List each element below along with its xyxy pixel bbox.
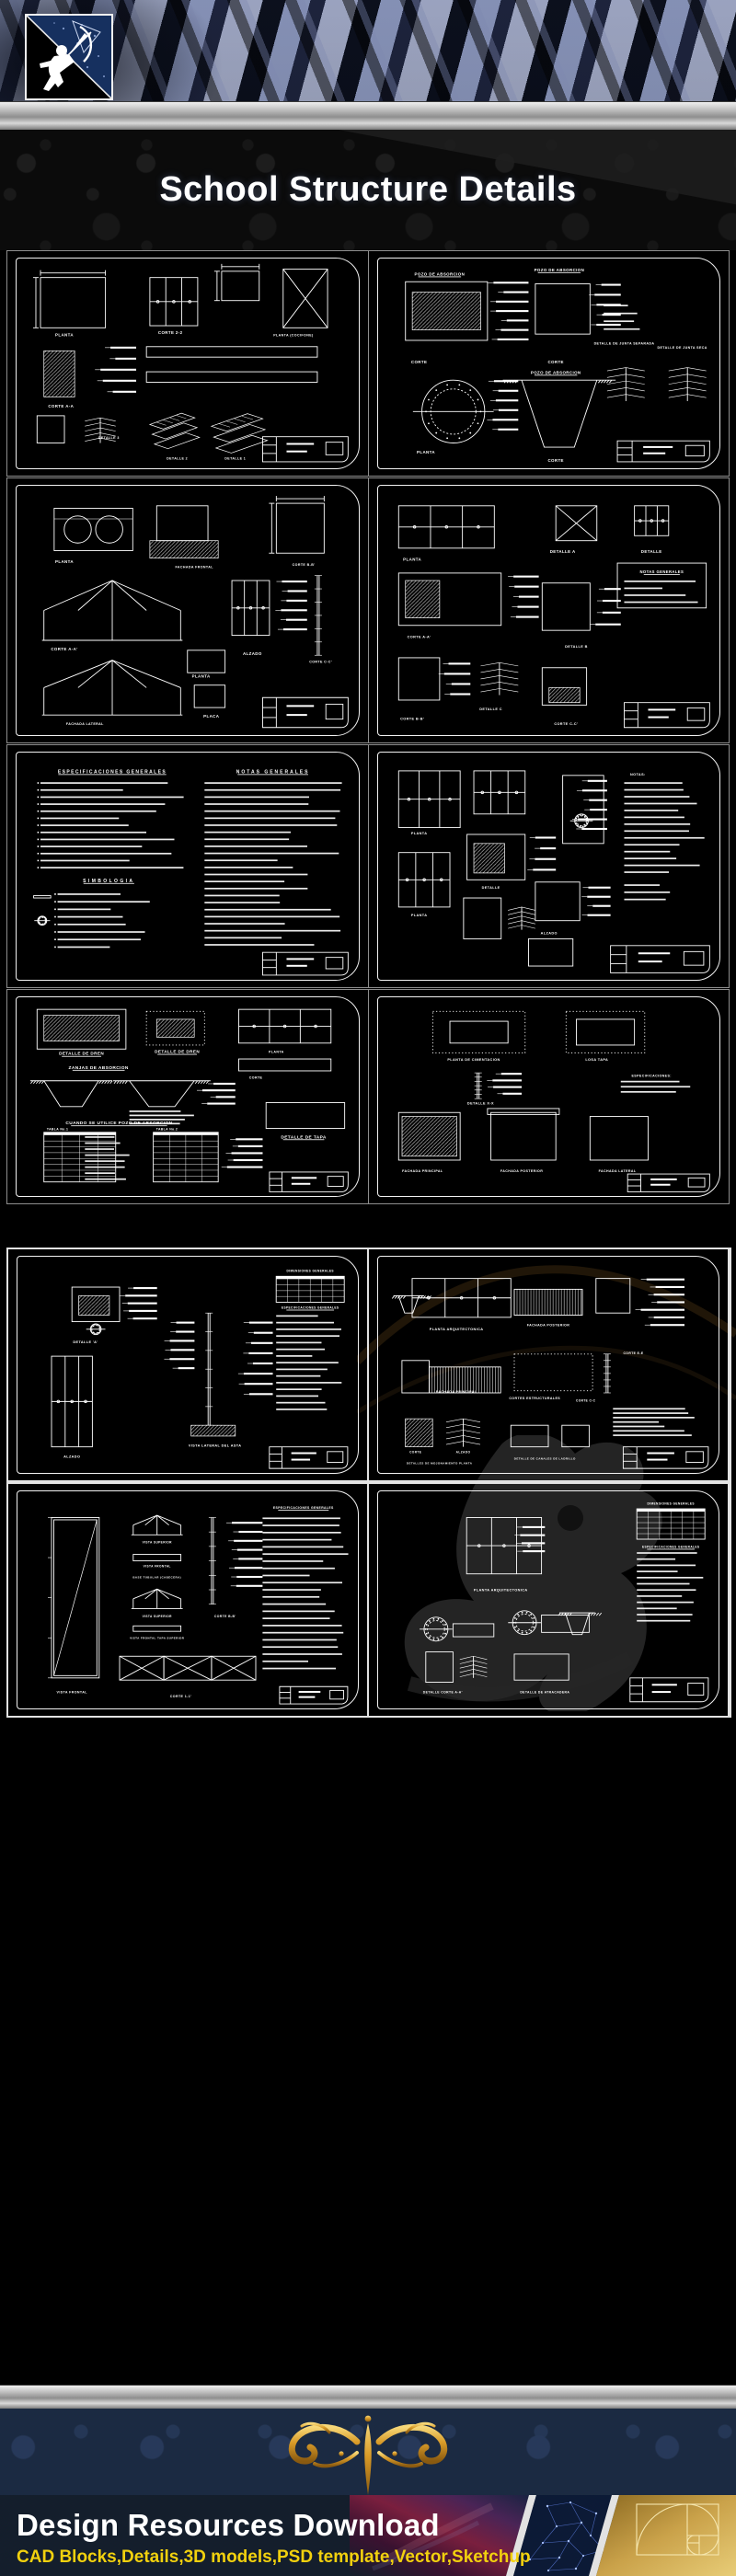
svg-text:CORTE 1-1': CORTE 1-1'	[170, 1695, 192, 1698]
svg-text:PLANTA: PLANTA	[55, 559, 74, 564]
silver-divider-bottom	[0, 2385, 736, 2410]
cad-linework: PLANTADETALLE ADETALLENOTAS GENERALESCOR…	[378, 486, 720, 735]
svg-text:FACHADA LATERAL: FACHADA LATERAL	[66, 722, 104, 726]
svg-text:FACHADA PRINCIPAL: FACHADA PRINCIPAL	[436, 1390, 477, 1394]
svg-text:CORTE B-B': CORTE B-B'	[214, 1615, 236, 1618]
svg-text:CORTE: CORTE	[410, 360, 426, 364]
cad-sheet-6: PLANTAPLANTADETALLENOTAS:ALZADO	[377, 752, 721, 981]
svg-text:DETALLE CORTE A-A': DETALLE CORTE A-A'	[423, 1690, 463, 1694]
svg-text:CORTE A-A': CORTE A-A'	[407, 635, 431, 638]
svg-text:CORTE: CORTE	[249, 1076, 263, 1080]
svg-text:DETALLE 'A': DETALLE 'A'	[73, 1340, 98, 1344]
svg-text:CUANDO SE UTILICE POZO DE ABSO: CUANDO SE UTILICE POZO DE ABSORCION	[65, 1121, 172, 1126]
product-page: School Structure Details PLANTACORTE 2-2…	[0, 0, 736, 2576]
svg-text:DETALLE DE TAPA: DETALLE DE TAPA	[281, 1134, 327, 1140]
svg-text:VISTA LATERAL DEL ASTA: VISTA LATERAL DEL ASTA	[189, 1444, 242, 1448]
svg-text:CORTE A-A: CORTE A-A	[48, 404, 74, 408]
svg-text:DETALLE DE JUNTA SECA: DETALLE DE JUNTA SECA	[657, 346, 707, 350]
svg-text:ZANJAS DE ABSORCION: ZANJAS DE ABSORCION	[69, 1065, 129, 1071]
svg-text:DETALLE DE CANALES DE LADRILLO: DETALLE DE CANALES DE LADRILLO	[514, 1457, 576, 1461]
svg-text:CORTE: CORTE	[409, 1451, 421, 1455]
svg-text:BASE TUBULAR (CABECERA): BASE TUBULAR (CABECERA)	[132, 1575, 181, 1579]
cad-panels-section: PLANTACORTE 2-2PLANTA (COCIFONE)CORTE A-…	[0, 0, 736, 2576]
svg-text:CORTE A-A': CORTE A-A'	[51, 647, 77, 651]
svg-text:ALZADO: ALZADO	[540, 931, 557, 935]
panel-row-4: DETALLE DE DRENDETALLE DE DRENZANJAS DE …	[6, 989, 730, 1204]
svg-text:PLANTA: PLANTA	[410, 914, 427, 917]
svg-text:CORTE B-B': CORTE B-B'	[293, 563, 316, 567]
svg-text:CORTE 2-2: CORTE 2-2	[158, 330, 183, 335]
cad-linework: DETALLE DE DRENDETALLE DE DRENZANJAS DE …	[17, 997, 359, 1196]
cad-sheet-3: PLANTAFACHADA FRONTALCORTE B-B'CORTE A-A…	[16, 485, 360, 736]
cad-sheet-11: VISTA FRONTALVISTA SUPERIORVISTA FRONTAL…	[17, 1490, 359, 1709]
svg-text:DETALLE X-X: DETALLE X-X	[466, 1102, 493, 1106]
svg-text:POZO DE ABSORCION: POZO DE ABSORCION	[414, 271, 465, 276]
svg-text:CORTE C-C': CORTE C-C'	[309, 660, 332, 663]
cad-linework: PLANTA ARQUITECTONICAFACHADA POSTERIORCO…	[378, 1257, 719, 1473]
cad-linework: PLANTA DE CIMENTACIONLOSA TAPADETALLE X-…	[378, 997, 720, 1196]
svg-text:DIMENSIONES GENERALES: DIMENSIONES GENERALES	[286, 1270, 333, 1273]
svg-text:CORTES ESTRUCTURALES: CORTES ESTRUCTURALES	[509, 1397, 560, 1400]
cad-linework: PLANTAPLANTADETALLENOTAS:ALZADO	[378, 753, 720, 980]
svg-text:VISTA FRONTAL: VISTA FRONTAL	[57, 1690, 88, 1694]
svg-text:FACHADA FRONTAL: FACHADA FRONTAL	[176, 565, 214, 569]
svg-text:DETALLE A: DETALLE A	[549, 549, 575, 554]
svg-text:DETALLE 1: DETALLE 1	[224, 457, 246, 461]
ornament-band	[0, 2409, 736, 2495]
cad-sheet-1: PLANTACORTE 2-2PLANTA (COCIFONE)CORTE A-…	[16, 258, 360, 469]
panel-row-2: PLANTAFACHADA FRONTALCORTE B-B'CORTE A-A…	[6, 477, 730, 743]
svg-text:CORTE C-C: CORTE C-C	[576, 1398, 596, 1402]
cad-linework: POZO DE ABSORCIONPOZO DE ABSORCIONCORTEC…	[378, 259, 720, 468]
svg-text:LOSA TAPA: LOSA TAPA	[585, 1058, 608, 1062]
svg-text:CORTE: CORTE	[547, 458, 563, 463]
svg-text:CORTE B-B': CORTE B-B'	[400, 718, 424, 721]
cad-linework: PLANTAFACHADA FRONTALCORTE B-B'CORTE A-A…	[17, 486, 359, 735]
svg-text:ESPECIFICACIONES GENERALES: ESPECIFICACIONES GENERALES	[282, 1305, 339, 1309]
svg-text:DETALLES DE MOJONAMIENTO PLANT: DETALLES DE MOJONAMIENTO PLANTA	[407, 1461, 473, 1465]
svg-text:DETALLE: DETALLE	[481, 886, 500, 890]
svg-text:PLACA: PLACA	[203, 714, 220, 719]
cad-linework: ESPECIFICACIONES GENERALESNOTAS GENERALE…	[17, 753, 359, 980]
cad-linework: DETALLE 'A'ALZADOVISTA LATERAL DEL ASTAD…	[17, 1257, 358, 1473]
svg-text:FACHADA POSTERIOR: FACHADA POSTERIOR	[527, 1323, 569, 1327]
panel-row-3: ESPECIFICACIONES GENERALESNOTAS GENERALE…	[6, 744, 730, 988]
svg-text:ALZADO: ALZADO	[63, 1455, 80, 1458]
svg-text:NOTAS GENERALES: NOTAS GENERALES	[639, 569, 684, 574]
svg-text:VISTA FRONTAL: VISTA FRONTAL	[144, 1565, 171, 1569]
svg-text:PLANTA: PLANTA	[403, 557, 421, 561]
cad-sheet-5: ESPECIFICACIONES GENERALESNOTAS GENERALE…	[16, 752, 360, 981]
svg-text:ALZADO: ALZADO	[243, 651, 262, 656]
svg-text:CORTE: CORTE	[547, 360, 563, 364]
svg-text:PLANTA: PLANTA	[192, 674, 211, 679]
footer-title: Design Resources Download	[17, 2508, 440, 2543]
svg-text:ESPECIFICACIONES GENERALES: ESPECIFICACIONES GENERALES	[642, 1545, 700, 1548]
cad-sheet-10: PLANTA ARQUITECTONICAFACHADA POSTERIORCO…	[377, 1256, 719, 1474]
cad-sheet-9: DETALLE 'A'ALZADOVISTA LATERAL DEL ASTAD…	[17, 1256, 359, 1474]
svg-text:VISTA FRONTAL TAPA SUPERIOR: VISTA FRONTAL TAPA SUPERIOR	[130, 1636, 185, 1639]
svg-text:VISTA SUPERIOR: VISTA SUPERIOR	[143, 1541, 172, 1545]
svg-text:POZO DE ABSORCION: POZO DE ABSORCION	[530, 370, 581, 374]
svg-text:FACHADA LATERAL: FACHADA LATERAL	[598, 1169, 636, 1173]
gold-ornament-icon	[230, 2410, 506, 2502]
svg-text:PLANTA ARQUITECTONICA: PLANTA ARQUITECTONICA	[474, 1589, 528, 1593]
svg-text:ALZADO: ALZADO	[456, 1451, 471, 1455]
svg-text:SIMBOLOGIA: SIMBOLOGIA	[83, 879, 134, 884]
svg-text:PLANTA: PLANTA	[269, 1051, 284, 1054]
svg-text:ESPECIFICACIONES GENERALES: ESPECIFICACIONES GENERALES	[273, 1506, 334, 1510]
svg-text:PLANTA ARQUITECTONICA: PLANTA ARQUITECTONICA	[430, 1328, 484, 1331]
svg-text:DETALLE B: DETALLE B	[565, 645, 588, 649]
svg-text:ESPECIFICACIONES GENERALES: ESPECIFICACIONES GENERALES	[58, 769, 167, 775]
svg-text:PLANTA: PLANTA	[417, 450, 435, 454]
svg-text:PLANTA: PLANTA	[55, 332, 74, 337]
panel-row-5: DETALLE 'A'ALZADOVISTA LATERAL DEL ASTAD…	[6, 1248, 731, 1482]
svg-text:FACHADA PRINCIPAL: FACHADA PRINCIPAL	[402, 1169, 443, 1173]
svg-text:DIMENSIONES GENERALES: DIMENSIONES GENERALES	[647, 1501, 694, 1505]
svg-text:DETALLE C: DETALLE C	[479, 707, 502, 711]
cad-sheet-7: DETALLE DE DRENDETALLE DE DRENZANJAS DE …	[16, 996, 360, 1197]
svg-text:DETALLE 2: DETALLE 2	[167, 457, 188, 461]
svg-text:DETALLE DE DREN: DETALLE DE DREN	[155, 1050, 200, 1054]
svg-text:DETALLE DE JUNTA SEPARADA: DETALLE DE JUNTA SEPARADA	[593, 342, 654, 346]
panel-row-1: PLANTACORTE 2-2PLANTA (COCIFONE)CORTE A-…	[6, 250, 730, 477]
svg-text:ESPECIFICACIONES:: ESPECIFICACIONES:	[631, 1074, 671, 1077]
svg-text:FACHADA POSTERIOR: FACHADA POSTERIOR	[500, 1169, 542, 1173]
cad-sheet-8: PLANTA DE CIMENTACIONLOSA TAPADETALLE X-…	[377, 996, 721, 1197]
svg-text:VISTA SUPERIOR: VISTA SUPERIOR	[143, 1615, 172, 1618]
cad-sheet-4: PLANTADETALLE ADETALLENOTAS GENERALESCOR…	[377, 485, 721, 736]
svg-text:POZO DE ABSORCION: POZO DE ABSORCION	[534, 268, 584, 272]
svg-text:DETALLE: DETALLE	[640, 549, 661, 554]
panel-row-6: VISTA FRONTALVISTA SUPERIORVISTA FRONTAL…	[6, 1482, 731, 1718]
svg-text:DETALLE DE ATRACADERA: DETALLE DE ATRACADERA	[520, 1690, 569, 1694]
svg-text:CORTE E-E: CORTE E-E	[623, 1351, 643, 1355]
svg-text:DETALLE DE DREN: DETALLE DE DREN	[59, 1052, 104, 1056]
cad-linework: PLANTA ARQUITECTONICADETALLE CORTE A-A'D…	[378, 1491, 719, 1708]
cad-sheet-2: POZO DE ABSORCIONPOZO DE ABSORCIONCORTEC…	[377, 258, 721, 469]
svg-text:CORTE C-C': CORTE C-C'	[554, 722, 578, 726]
cad-sheet-12: PLANTA ARQUITECTONICADETALLE CORTE A-A'D…	[377, 1490, 719, 1709]
svg-text:NOTAS GENERALES: NOTAS GENERALES	[236, 769, 310, 775]
footer-banner: Design Resources Download CAD Blocks,Det…	[0, 2495, 736, 2576]
svg-text:TABLA No.2: TABLA No.2	[156, 1128, 178, 1132]
cad-linework: VISTA FRONTALVISTA SUPERIORVISTA FRONTAL…	[17, 1491, 358, 1708]
footer-subtitle: CAD Blocks,Details,3D models,PSD templat…	[17, 2547, 531, 2568]
svg-text:PLANTA (COCIFONE): PLANTA (COCIFONE)	[273, 333, 314, 337]
svg-text:NOTAS:: NOTAS:	[629, 773, 645, 776]
svg-text:PLANTA: PLANTA	[410, 832, 427, 835]
cad-linework: PLANTACORTE 2-2PLANTA (COCIFONE)CORTE A-…	[17, 259, 359, 468]
svg-text:TABLA No.1: TABLA No.1	[47, 1128, 68, 1132]
svg-text:DETALLE 3: DETALLE 3	[98, 436, 120, 440]
svg-text:PLANTA DE CIMENTACION: PLANTA DE CIMENTACION	[447, 1058, 500, 1062]
